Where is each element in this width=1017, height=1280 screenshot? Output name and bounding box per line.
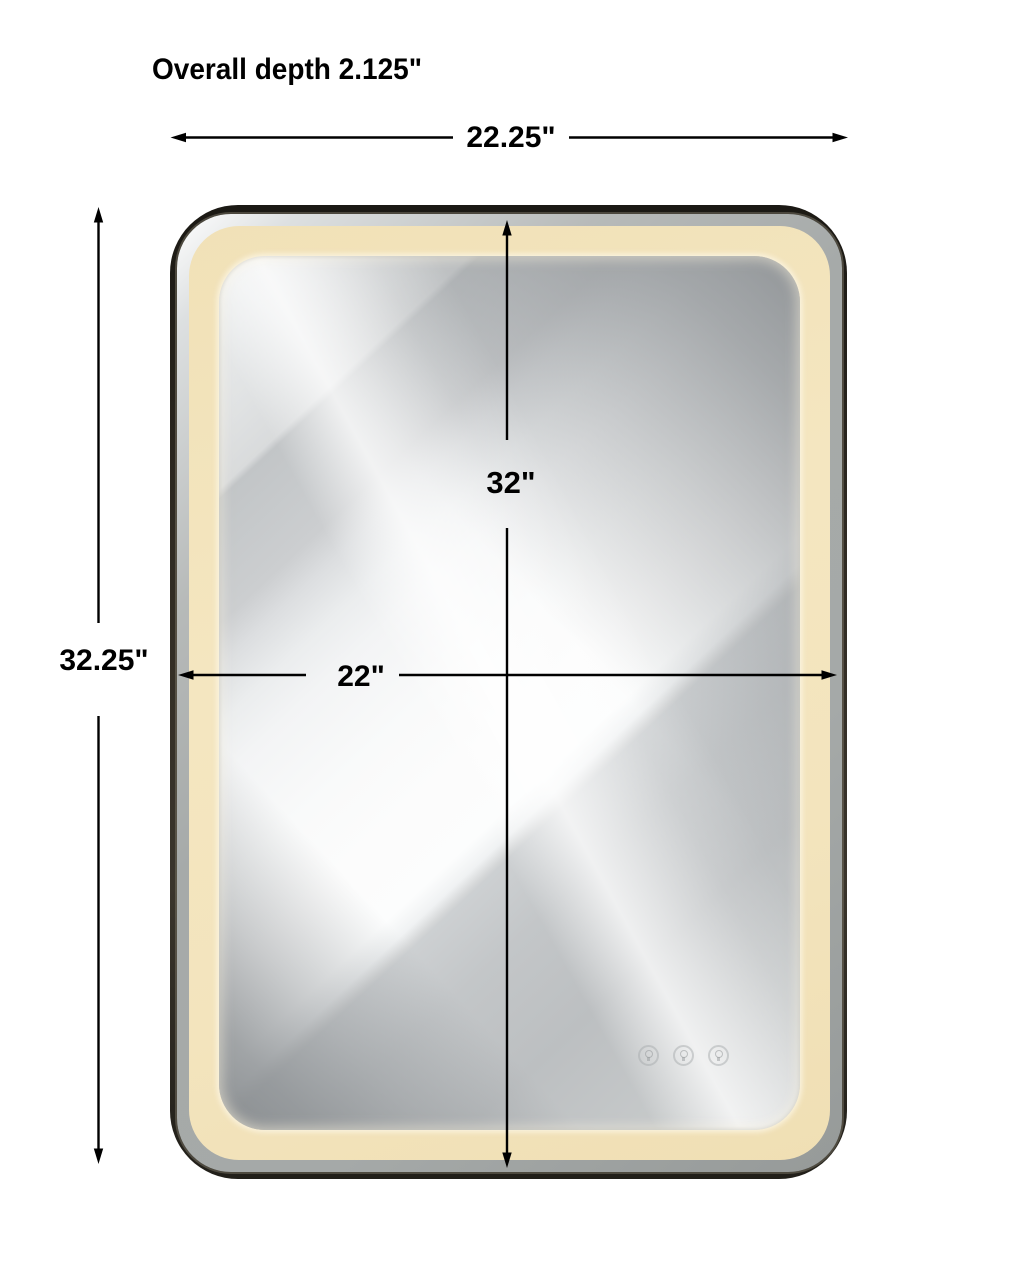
svg-text:22.25": 22.25" — [466, 121, 555, 154]
svg-text:32.25": 32.25" — [59, 644, 148, 677]
svg-text:Overall depth 2.125": Overall depth 2.125" — [152, 53, 422, 86]
svg-text:32": 32" — [486, 465, 535, 500]
svg-text:22": 22" — [337, 660, 385, 693]
